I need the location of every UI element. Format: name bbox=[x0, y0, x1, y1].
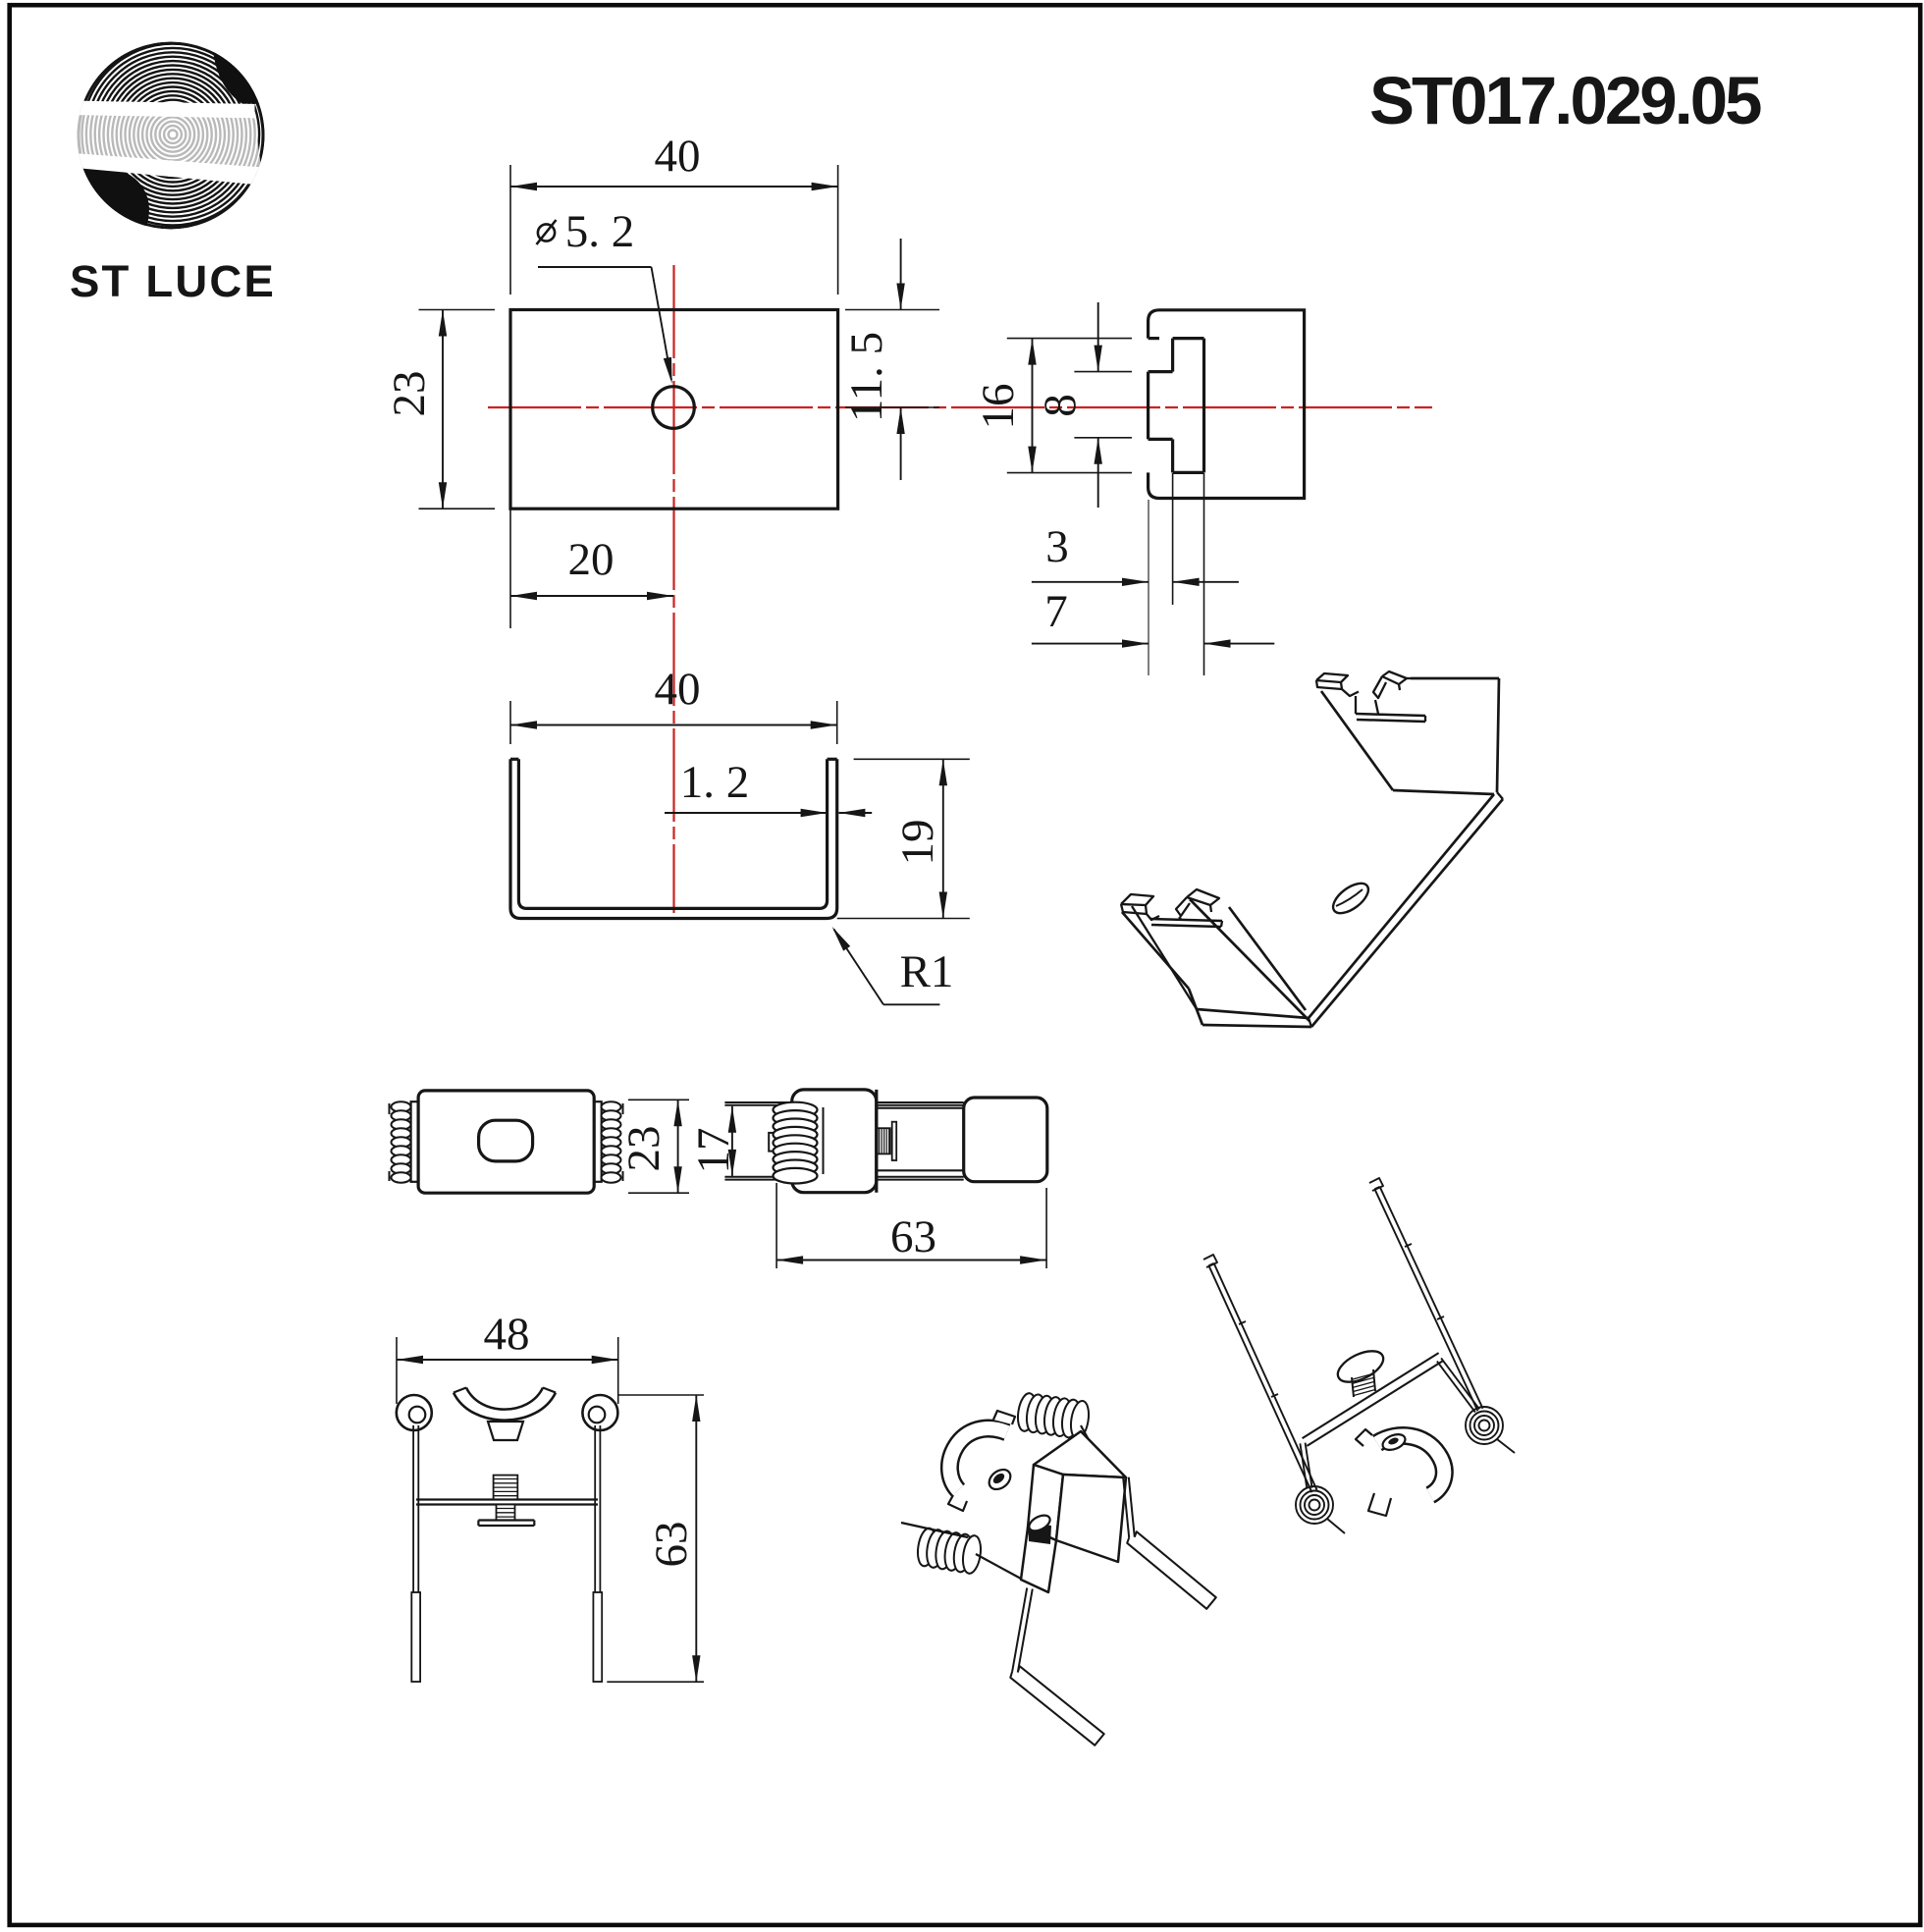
svg-text:1. 2: 1. 2 bbox=[680, 757, 750, 808]
svg-text:40: 40 bbox=[655, 664, 701, 715]
svg-text:R1: R1 bbox=[900, 946, 954, 997]
svg-text:ST LUCE: ST LUCE bbox=[70, 256, 276, 306]
svg-text:19: 19 bbox=[892, 820, 943, 866]
svg-text:20: 20 bbox=[568, 534, 615, 585]
svg-text:17: 17 bbox=[688, 1128, 739, 1174]
svg-text:11. 5: 11. 5 bbox=[841, 332, 892, 422]
svg-text:40: 40 bbox=[655, 131, 701, 182]
svg-text:23: 23 bbox=[618, 1126, 669, 1172]
svg-text:23: 23 bbox=[384, 371, 435, 417]
svg-text:3: 3 bbox=[1045, 521, 1069, 572]
svg-text:7: 7 bbox=[1044, 586, 1068, 637]
svg-text:63: 63 bbox=[646, 1522, 697, 1568]
svg-text:8: 8 bbox=[1035, 394, 1086, 417]
svg-text:ST017.029.05: ST017.029.05 bbox=[1369, 63, 1761, 138]
svg-text:63: 63 bbox=[890, 1211, 936, 1262]
svg-text:5. 2: 5. 2 bbox=[565, 206, 635, 257]
svg-text:48: 48 bbox=[484, 1309, 530, 1360]
svg-text:16: 16 bbox=[973, 384, 1024, 430]
